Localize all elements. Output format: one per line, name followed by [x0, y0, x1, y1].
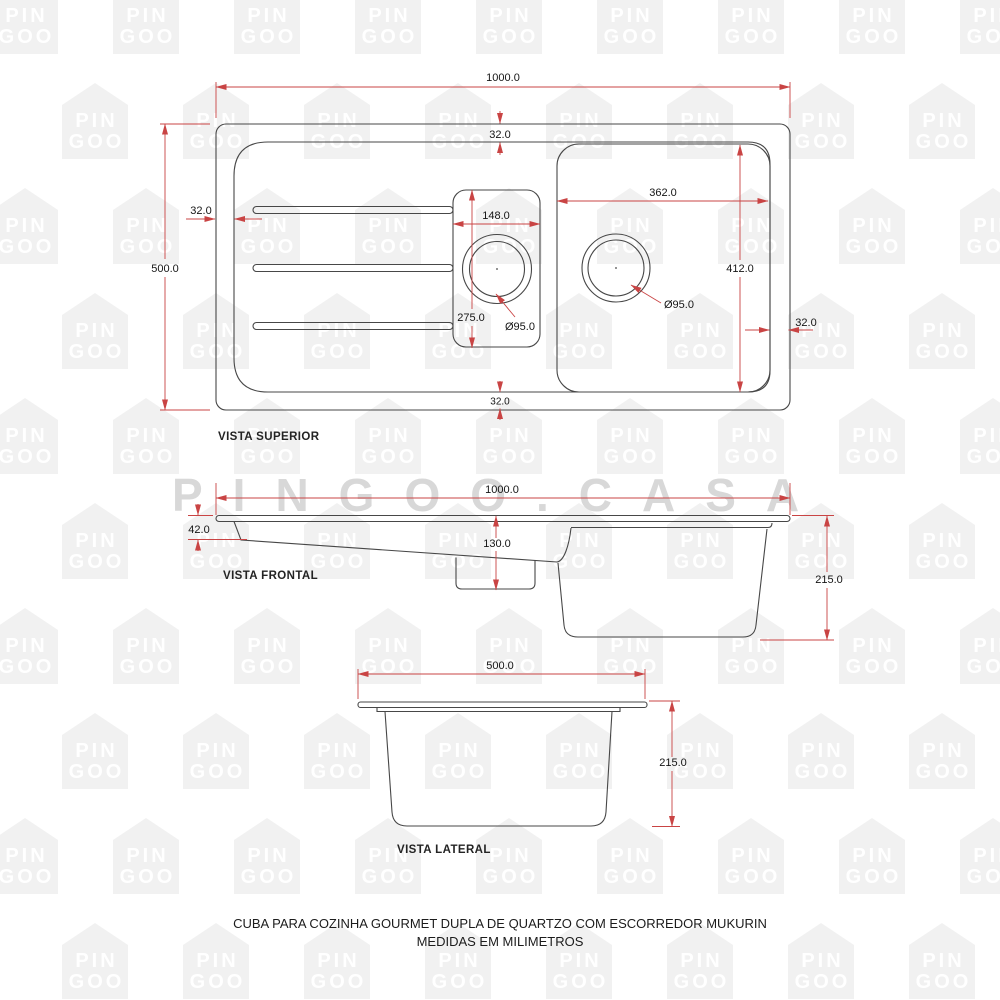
dim-small-drain: Ø95.0	[496, 294, 535, 333]
dim-front-depth: 215.0	[760, 516, 843, 641]
dim-top-width: 1000.0	[216, 72, 790, 118]
side-countertop-slab	[358, 702, 647, 708]
dim-top-inset-right: 32.0	[745, 317, 817, 330]
top-view-outer-outline	[216, 124, 790, 410]
dim-label: 32.0	[190, 205, 211, 217]
drainboard-bar	[253, 207, 453, 214]
sink-technical-drawing: 1000.0 32.0 500.0 32.0	[0, 0, 1000, 1000]
dim-large-bowl-width: 362.0	[557, 187, 768, 201]
front-view-label: VISTA FRONTAL	[223, 570, 318, 582]
dim-label: 362.0	[649, 187, 677, 199]
dim-label: 215.0	[815, 574, 843, 586]
dim-label: 32.0	[489, 129, 510, 141]
dim-top-inset-top: 32.0	[489, 111, 510, 155]
dim-top-inset-bottom: 32.0	[490, 381, 510, 420]
front-view: 1000.0 42.0 130.0 215.0 VISTA FRONTAL	[188, 483, 843, 640]
dim-side-width: 500.0	[358, 660, 645, 699]
front-small-bowl-profile	[456, 558, 535, 590]
caption-line-1: CUBA PARA COZINHA GOURMET DUPLA DE QUART…	[233, 916, 767, 931]
dim-label: 275.0	[457, 312, 485, 324]
front-underrim-line	[571, 523, 772, 528]
dim-label: 500.0	[151, 263, 179, 275]
dim-label: 148.0	[482, 210, 510, 222]
side-view: 500.0 215.0 VISTA LATERAL	[358, 660, 687, 856]
drainboard-bar	[253, 323, 453, 330]
caption: CUBA PARA COZINHA GOURMET DUPLA DE QUART…	[233, 916, 767, 949]
dim-front-width: 1000.0	[216, 483, 790, 515]
dim-label: 130.0	[483, 538, 511, 550]
dim-top-height: 500.0	[151, 124, 210, 410]
dim-label: 215.0	[659, 757, 687, 769]
dim-large-drain: Ø95.0	[631, 285, 694, 311]
side-bowl-profile	[385, 712, 612, 827]
front-countertop-slab	[216, 516, 790, 522]
dim-side-depth: 215.0	[649, 701, 687, 827]
top-view-label: VISTA SUPERIOR	[218, 431, 320, 443]
dim-front-small-depth: 130.0	[483, 516, 511, 590]
front-drainboard-slope	[234, 522, 571, 563]
large-bowl-center-mark	[615, 267, 617, 269]
drainboard-bar	[253, 265, 453, 272]
side-view-label: VISTA LATERAL	[397, 844, 491, 856]
dim-label: 1000.0	[485, 484, 519, 496]
front-large-bowl-profile	[558, 529, 767, 637]
dim-label: 412.0	[726, 263, 754, 275]
dim-large-bowl-length: 412.0	[726, 145, 754, 392]
dim-label: 42.0	[188, 524, 209, 536]
technical-drawing-page: PINGOOPINGOOPINGOOPINGOOPINGOOPINGOOPING…	[0, 0, 1000, 1000]
side-underrim-lip	[377, 708, 620, 712]
dim-label: 1000.0	[486, 72, 520, 84]
dim-small-bowl-width: 148.0	[453, 210, 540, 224]
top-view: 1000.0 32.0 500.0 32.0	[151, 72, 816, 443]
dim-label: 32.0	[795, 317, 816, 329]
caption-line-2: MEDIDAS EM MILIMETROS	[417, 934, 584, 949]
dim-top-inset-left: 32.0	[186, 205, 262, 219]
top-view-inner-outline	[234, 142, 770, 392]
small-bowl-center-mark	[496, 268, 498, 270]
dim-label: 500.0	[486, 660, 514, 672]
dim-front-rim: 42.0	[188, 504, 247, 551]
dim-label: 32.0	[490, 397, 510, 408]
dim-label: Ø95.0	[505, 321, 535, 333]
dim-label: Ø95.0	[664, 299, 694, 311]
dim-small-bowl-length: 275.0	[457, 190, 485, 348]
